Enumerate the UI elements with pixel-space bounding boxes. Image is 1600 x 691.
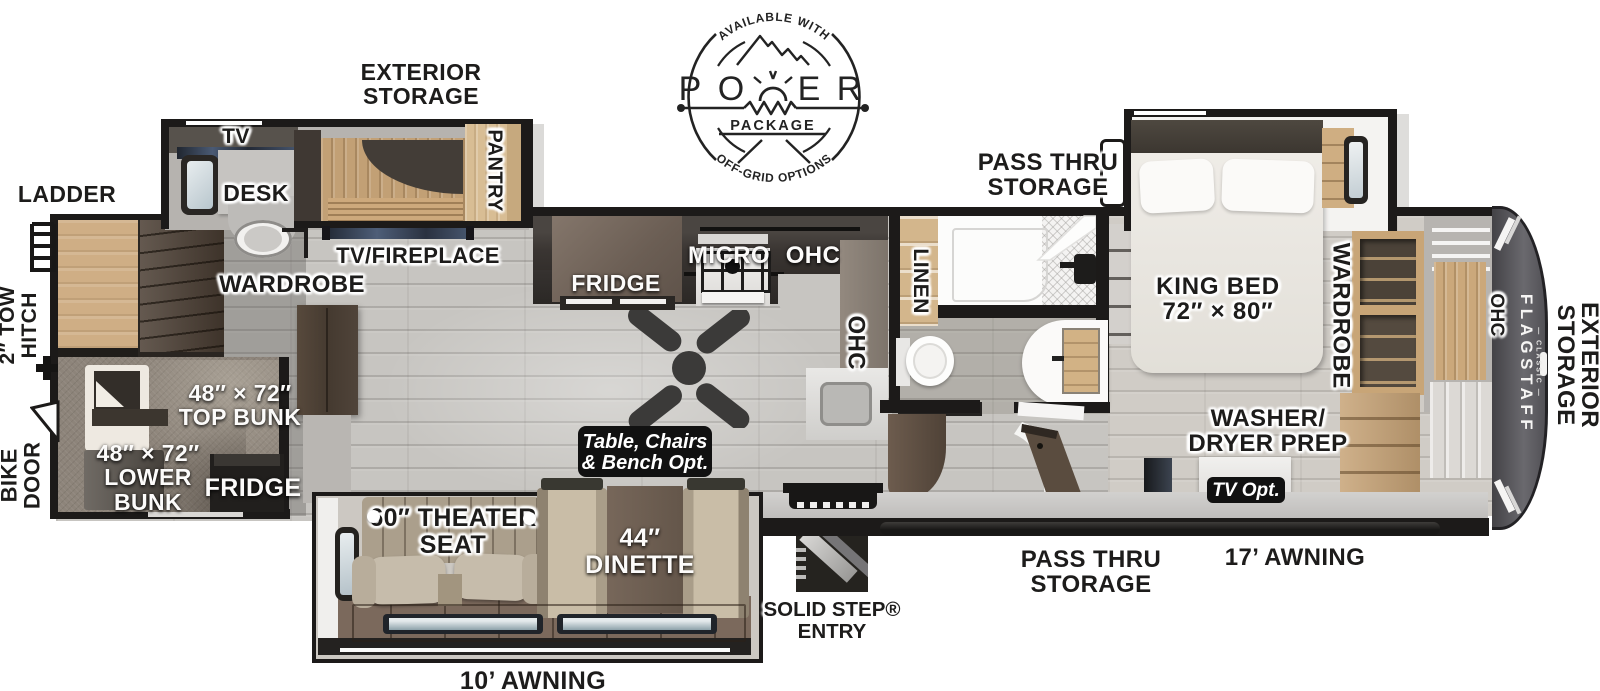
svg-text:O: O: [718, 70, 744, 108]
svg-text:AVAILABLE WITH: AVAILABLE WITH: [715, 10, 833, 44]
svg-text:R: R: [837, 70, 862, 108]
svg-text:E: E: [798, 70, 821, 108]
svg-text:OFF-GRID OPTIONS: OFF-GRID OPTIONS: [714, 151, 835, 185]
svg-text:PACKAGE: PACKAGE: [730, 118, 815, 134]
svg-text:P: P: [679, 70, 702, 108]
